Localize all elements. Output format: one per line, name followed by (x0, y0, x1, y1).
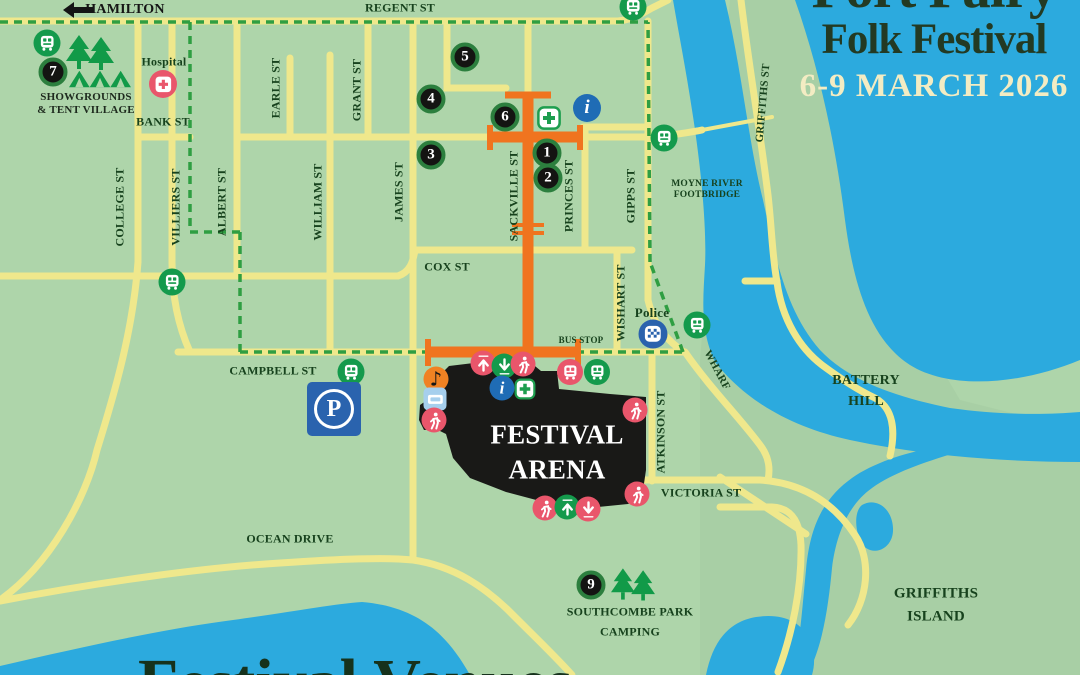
villiers-st-label: VILLIERS ST (169, 168, 184, 245)
exit-down-red-icon (576, 497, 601, 522)
access-icon (623, 398, 648, 423)
info-icon: i (573, 94, 601, 122)
bottom-heading: Festival Venues (138, 645, 573, 675)
venue-marker-9: 9 (577, 571, 606, 600)
griffiths-island-line1-label: GRIFFITHS (894, 586, 978, 603)
trees-small-icon (611, 568, 655, 601)
hamilton-sign-label: HAMILTON (85, 2, 164, 18)
shuttle-bus-icon (684, 312, 711, 339)
regent-st-label: REGENT ST (365, 1, 435, 16)
gipps-st-label: GIPPS ST (624, 169, 639, 224)
showgrounds-line2-label: & TENT VILLAGE (37, 104, 135, 116)
sackville-st-label: SACKVILLE ST (507, 151, 522, 242)
access-icon (625, 482, 650, 507)
festival-map: HAMILTONREGENT STBANK STHospitalSHOWGROU… (0, 0, 1080, 675)
grant-st-label: GRANT ST (350, 59, 365, 121)
shuttle-bus-icon (159, 269, 186, 296)
princes-st-label: PRINCES ST (562, 160, 577, 232)
earle-st-label: EARLE ST (269, 58, 284, 119)
moyne-river-line2-label: FOOTBRIDGE (674, 190, 740, 200)
parking-icon: P (307, 382, 361, 436)
first-aid-icon (537, 106, 562, 131)
james-st-label: JAMES ST (392, 162, 407, 222)
police-icon (639, 320, 668, 349)
access-icon (511, 352, 536, 377)
access-icon (422, 408, 447, 433)
griffiths-island-line2-label: ISLAND (907, 609, 965, 626)
festival-logo: Port Fairy Folk Festival 6-9 MARCH 2026 (778, 0, 1080, 104)
shuttle-bus-icon (584, 359, 610, 385)
trees-icon (66, 34, 114, 70)
info-icon: i (490, 376, 515, 401)
shuttle-bus-icon (34, 30, 61, 57)
bank-st-label: BANK ST (136, 115, 190, 130)
venue-marker-3: 3 (417, 141, 446, 170)
venue-marker-2: 2 (534, 164, 563, 193)
moyne-river-line1-label: MOYNE RIVER (671, 179, 743, 189)
logo-title-line2: Folk Festival (778, 18, 1080, 62)
wishart-st-label: WISHART ST (614, 264, 629, 341)
hamilton-arrow-icon (63, 2, 93, 19)
atkinson-st-label: ATKINSON ST (654, 390, 669, 473)
shuttle-bus-icon (651, 125, 678, 152)
southcombe-line1-label: SOUTHCOMBE PARK (567, 605, 693, 620)
campbell-st-label: CAMPBELL ST (229, 364, 316, 379)
cox-st-label: COX ST (424, 260, 470, 275)
venue-marker-4: 4 (417, 85, 446, 114)
battery-hill-line1-label: BATTERY (832, 373, 900, 389)
southcombe-line2-label: CAMPING (600, 625, 660, 640)
hospital-icon (149, 70, 177, 98)
shuttle-bus-red-icon (557, 359, 583, 385)
griffiths-st-label: GRIFFITHS ST (754, 63, 773, 143)
showgrounds-line1-label: SHOWGROUNDS (40, 91, 131, 103)
bus-stop-label: BUS STOP (559, 335, 604, 345)
festival-dates: 6-9 MARCH 2026 (778, 70, 1080, 104)
festival-arena-line1-label: FESTIVAL (490, 420, 623, 451)
wharf-label: WHARF (702, 348, 733, 392)
shuttle-bus-icon (620, 0, 647, 21)
victoria-st-label: VICTORIA ST (661, 486, 741, 501)
festival-arena-line2-label: ARENA (508, 455, 605, 486)
venue-marker-5: 5 (451, 43, 480, 72)
college-st-label: COLLEGE ST (113, 167, 128, 246)
battery-hill-line2-label: HILL (848, 394, 884, 410)
william-st-label: WILLIAM ST (311, 163, 326, 240)
ocean-drive-label: OCEAN DRIVE (246, 532, 333, 547)
first-aid-icon (514, 378, 536, 400)
venue-marker-6: 6 (491, 103, 520, 132)
albert-st-label: ALBERT ST (215, 168, 230, 236)
hospital-label: Hospital (142, 55, 187, 70)
tents-icon (69, 71, 131, 90)
venue-marker-7: 7 (39, 58, 68, 87)
